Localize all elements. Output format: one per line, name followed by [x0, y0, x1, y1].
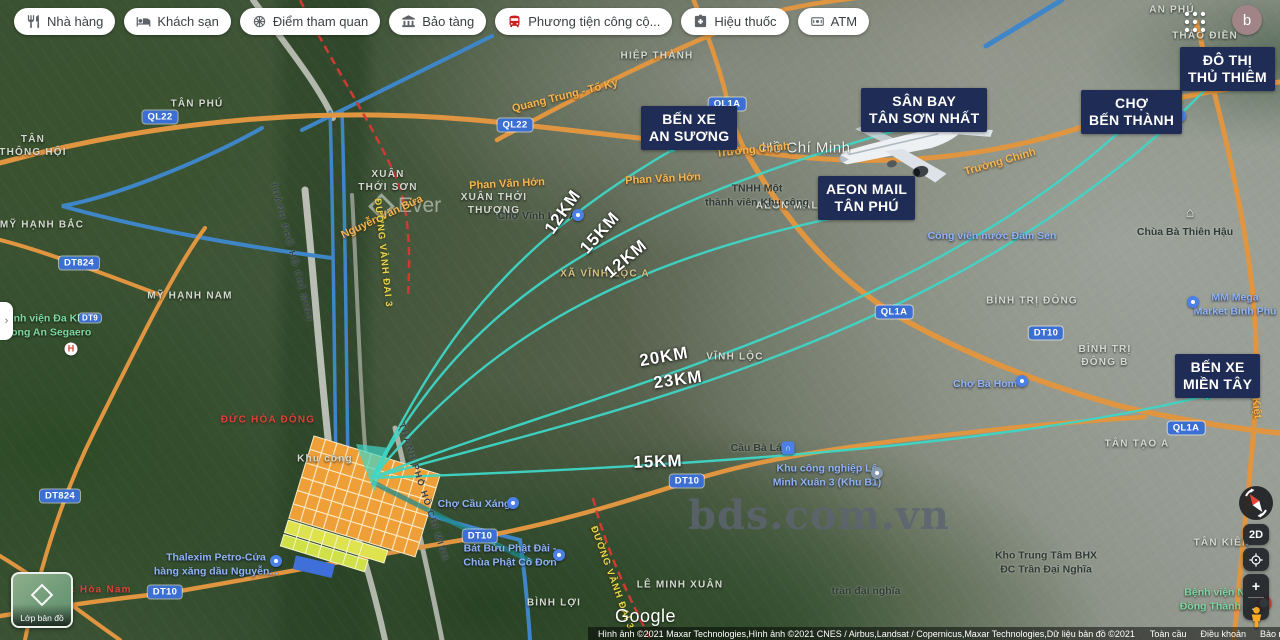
road-badge: DT10	[1029, 327, 1063, 340]
area-label-line: TÂN	[0, 133, 67, 146]
poi-label-line: trần đại nghĩa	[832, 585, 901, 599]
road-badge: QL22	[143, 111, 178, 124]
attraction-icon	[252, 14, 267, 29]
poi-cho-cau-xang-pin[interactable]	[507, 497, 519, 509]
toolbar-button-label: ATM	[831, 14, 857, 29]
poi-label-line: Khu công nghiệp Lê	[773, 462, 882, 476]
distance-label: 15KM	[633, 451, 683, 473]
landmark-label-line: MIỀN TÂY	[1183, 376, 1252, 393]
area-label-line: THỚI SƠN	[358, 181, 417, 194]
transit-icon	[507, 14, 522, 29]
area-label-line: Khu công	[297, 453, 353, 466]
layers-button[interactable]: Lớp bản đồ	[11, 572, 73, 628]
google-maps-satellite-app: Nhà hàngKhách sạnĐiểm tham quanBảo tàngP…	[0, 0, 1280, 640]
poi-cau-ba-lat-pin[interactable]: ∩	[782, 442, 795, 455]
road-badge: QL1A	[876, 306, 913, 319]
poi-label-line: Bát Bửu Phật Đài -	[463, 542, 556, 556]
attribution-link[interactable]: Bảo mật	[1260, 629, 1280, 639]
area-label-line: BÌNH TRỊ ĐÔNG	[986, 295, 1078, 308]
attribution-links: Toàn cầuĐiều khoảnBảo mậtGửi phản hồi	[1150, 629, 1280, 639]
landmark-cho-ben-thanh: CHỢBẾN THÀNH	[1081, 90, 1182, 134]
poi-kcn-le-minh-xuan[interactable]: Khu công nghiệp LêMinh Xuân 3 (Khu B1)	[773, 462, 882, 489]
area-label: TÂN KIÊN	[1194, 537, 1251, 550]
area-label: BÌNH TRỊ ĐÔNG	[986, 295, 1078, 308]
area-label-line: VĨNH LỘC	[706, 351, 763, 364]
filter-hotels[interactable]: Khách sạn	[124, 8, 230, 35]
poi-cau-ba-lat[interactable]: Cầu Bà Lát	[731, 442, 786, 456]
filter-atms[interactable]: ATM	[798, 8, 869, 35]
attribution-copyright: Hình ảnh ©2021 Maxar Technologies,Hình ả…	[598, 629, 1135, 639]
poi-label-line: thành viên Khu công	[705, 196, 809, 210]
filter-pharmacies[interactable]: Hiệu thuốc	[681, 8, 788, 35]
poi-chua-ba-thien-hau[interactable]: Chùa Bà Thiên Hậu	[1137, 226, 1233, 240]
poi-label-line: Chùa Bà Thiên Hậu	[1137, 226, 1233, 240]
poi-mm-mega-market[interactable]: MM MegaMarket Bình Phú	[1194, 291, 1277, 318]
poi-label-line: ĐC Trần Đại Nghĩa	[995, 563, 1097, 577]
landmark-label-line: AN SƯƠNG	[649, 128, 729, 145]
poi-dam-sen[interactable]: Công viên nước Đầm Sen	[928, 230, 1057, 244]
road-badge: DT824	[59, 257, 99, 270]
filter-museums[interactable]: Bảo tàng	[389, 8, 486, 35]
layers-button-label: Lớp bản đồ	[13, 604, 71, 626]
filter-transit[interactable]: Phương tiện công cộ...	[495, 8, 672, 35]
account-avatar[interactable]: b	[1232, 5, 1262, 35]
street-view-pegman[interactable]	[1247, 606, 1266, 629]
area-label-line: ĐỨC HÒA ĐÔNG	[221, 414, 316, 427]
place-filter-toolbar: Nhà hàngKhách sạnĐiểm tham quanBảo tàngP…	[14, 8, 869, 35]
road-badge: DT10	[463, 530, 497, 543]
restaurant-icon	[26, 14, 41, 29]
poi-label-line: Chợ Bà Hom	[953, 378, 1017, 392]
toolbar-button-label: Hiệu thuốc	[714, 14, 776, 29]
area-label: BÌNH TRỊĐÔNG B	[1079, 343, 1132, 369]
landmark-ben-xe-an-suong: BẾN XEAN SƯƠNG	[641, 106, 737, 150]
toolbar-button-label: Bảo tàng	[422, 14, 474, 29]
poi-label-line: Market Bình Phú	[1194, 305, 1277, 319]
landmark-san-bay-tan-son-nhat: SÂN BAYTÂN SƠN NHẤT	[861, 88, 987, 132]
area-label: TÂN TẠO A	[1105, 438, 1170, 451]
area-label-line: LÊ MINH XUÂN	[637, 579, 724, 592]
landmark-label-line: TÂN SƠN NHẤT	[869, 110, 979, 127]
attribution-bar: Hình ảnh ©2021 Maxar Technologies,Hình ả…	[588, 627, 1280, 640]
poi-cho-cau-xang[interactable]: Chợ Cầu Xáng	[438, 498, 511, 512]
filter-attractions[interactable]: Điểm tham quan	[240, 8, 380, 35]
poi-label-line: Công viên nước Đầm Sen	[928, 230, 1057, 244]
poi-benh-vien-long-an-pin[interactable]: H	[65, 343, 78, 356]
poi-label-line: Chùa Phật Cô Đơn	[463, 556, 556, 570]
area-label: Khu công	[297, 453, 353, 466]
area-label-line: MỸ HẠNH NAM	[147, 290, 232, 303]
area-label-line: HIỆP THÀNH	[621, 50, 694, 63]
poi-label-line: Kho Trung Tâm BHX	[995, 549, 1097, 563]
landmark-label-line: SÂN BAY	[869, 93, 979, 110]
layers-diamond-icon	[31, 584, 54, 607]
pharmacy-icon	[693, 14, 708, 29]
poi-label-line: Cầu Bà Lát	[731, 442, 786, 456]
area-label: HIỆP THÀNH	[621, 50, 694, 63]
museum-icon	[401, 14, 416, 29]
area-label: TÂN PHÚ	[171, 98, 224, 111]
poi-mm-mega-market-pin[interactable]	[1187, 296, 1199, 308]
toolbar-button-label: Phương tiện công cộ...	[528, 14, 660, 29]
poi-thalexim-petro-pin[interactable]	[270, 555, 282, 567]
attribution-link[interactable]: Toàn cầu	[1150, 629, 1187, 639]
landmark-label-line: BẾN XE	[649, 111, 729, 128]
area-label-line: XUÂN THỚI	[461, 191, 528, 204]
area-label: VĨNH LỘC	[706, 351, 763, 364]
road-badge: DT10	[148, 586, 182, 599]
landmark-label-line: AEON MAIL	[826, 181, 907, 198]
area-label-line: BÌNH LỢI	[527, 597, 581, 610]
area-label-line: BÌNH TRỊ	[1079, 343, 1132, 356]
road-badge: QL22	[498, 119, 533, 132]
area-label-line: XUÂN	[358, 168, 417, 181]
poi-tnhh-khu-cong[interactable]: TNHH Mộtthành viên Khu công	[705, 182, 809, 209]
area-label-line: ĐÔNG B	[1079, 356, 1132, 369]
area-label: ĐỨC HÒA ĐÔNG	[221, 414, 316, 427]
poi-kcn-le-minh-xuan-pin[interactable]	[871, 467, 883, 479]
landmark-label-line: TÂN PHÚ	[826, 198, 907, 215]
poi-chua-ba-thien-hau-pin[interactable]: ⌂	[1186, 204, 1194, 220]
road-badge: DT9	[79, 314, 101, 323]
poi-label-line: Thalexim Petro-Cửa	[154, 551, 278, 565]
landmark-ben-xe-mien-tay: BẾN XEMIỀN TÂY	[1175, 354, 1260, 398]
toggle-2d-button[interactable]: 2D	[1243, 524, 1269, 545]
area-label: XUÂNTHỚI SƠN	[358, 168, 417, 194]
poi-label-line: MM Mega	[1194, 291, 1277, 305]
area-label: LÊ MINH XUÂN	[637, 579, 724, 592]
area-label-line: THÔNG HỘI	[0, 146, 67, 159]
google-apps-grid-icon[interactable]	[1183, 10, 1207, 34]
my-location-button[interactable]	[1243, 548, 1269, 571]
toolbar-button-label: Điểm tham quan	[273, 14, 368, 29]
poi-label-line: TNHH Một	[705, 182, 809, 196]
landmark-aeon-mail-tan-phu: AEON MAILTÂN PHÚ	[818, 176, 915, 220]
attribution-link[interactable]: Điều khoản	[1200, 629, 1246, 639]
area-label: MỸ HẠNH NAM	[147, 290, 232, 303]
poi-cho-ba-hom-pin[interactable]	[1016, 375, 1028, 387]
zoom-in-button[interactable]: +	[1243, 575, 1269, 597]
landmark-label-line: CHỢ	[1089, 95, 1174, 112]
area-label-line: TÂN TẠO A	[1105, 438, 1170, 451]
poi-thalexim-petro[interactable]: Thalexim Petro-Cửahàng xăng dầu Nguyễn..…	[154, 551, 278, 578]
area-label-line: MỸ HẠNH BẮC	[0, 219, 84, 232]
landmark-label-line: BẾN THÀNH	[1089, 112, 1174, 129]
poi-label-line: hàng xăng dầu Nguyễn...	[154, 565, 278, 579]
poi-tran-dai-nghia[interactable]: trần đại nghĩa	[832, 585, 901, 599]
filter-restaurants[interactable]: Nhà hàng	[14, 8, 115, 35]
area-label-line: TÂN KIÊN	[1194, 537, 1251, 550]
google-logo: Google	[615, 606, 676, 627]
bds-watermark: bds.com.vn	[688, 492, 950, 539]
toolbar-button-label: Khách sạn	[157, 14, 218, 29]
area-label: MỸ HẠNH BẮC	[0, 219, 84, 232]
hotel-icon	[136, 14, 151, 29]
atm-icon	[810, 14, 825, 29]
poi-cho-ba-hom[interactable]: Chợ Bà Hom	[953, 378, 1017, 392]
landmark-label-line: BẾN XE	[1183, 359, 1252, 376]
landmark-label-line: THỦ THIÊM	[1188, 69, 1267, 86]
compass-control[interactable]	[1238, 485, 1274, 521]
poi-bat-buu-phat-dai-pin[interactable]	[553, 549, 565, 561]
landmark-label-line: ĐÔ THỊ	[1188, 52, 1267, 69]
poi-label-line: Long An Segaero	[0, 326, 96, 340]
poi-label-line: Minh Xuân 3 (Khu B1)	[773, 476, 882, 490]
area-label: BÌNH LỢI	[527, 597, 581, 610]
poi-label-line: Chợ Cầu Xáng	[438, 498, 511, 512]
toolbar-button-label: Nhà hàng	[47, 14, 103, 29]
poi-bat-buu-phat-dai[interactable]: Bát Bửu Phật Đài -Chùa Phật Cô Đơn	[463, 542, 556, 569]
poi-kho-trung-tam[interactable]: Kho Trung Tâm BHXĐC Trần Đại Nghĩa	[995, 549, 1097, 576]
area-label-line: TÂN PHÚ	[171, 98, 224, 111]
side-panel-toggle[interactable]: ›	[0, 302, 13, 340]
road-badge: DT10	[670, 475, 704, 488]
road-badge: DT824	[40, 490, 80, 503]
area-label: TÂNTHÔNG HỘI	[0, 133, 67, 159]
road-badge: QL1A	[1168, 422, 1205, 435]
landmark-do-thi-thu-thiem: ĐÔ THỊTHỦ THIÊM	[1180, 47, 1275, 91]
